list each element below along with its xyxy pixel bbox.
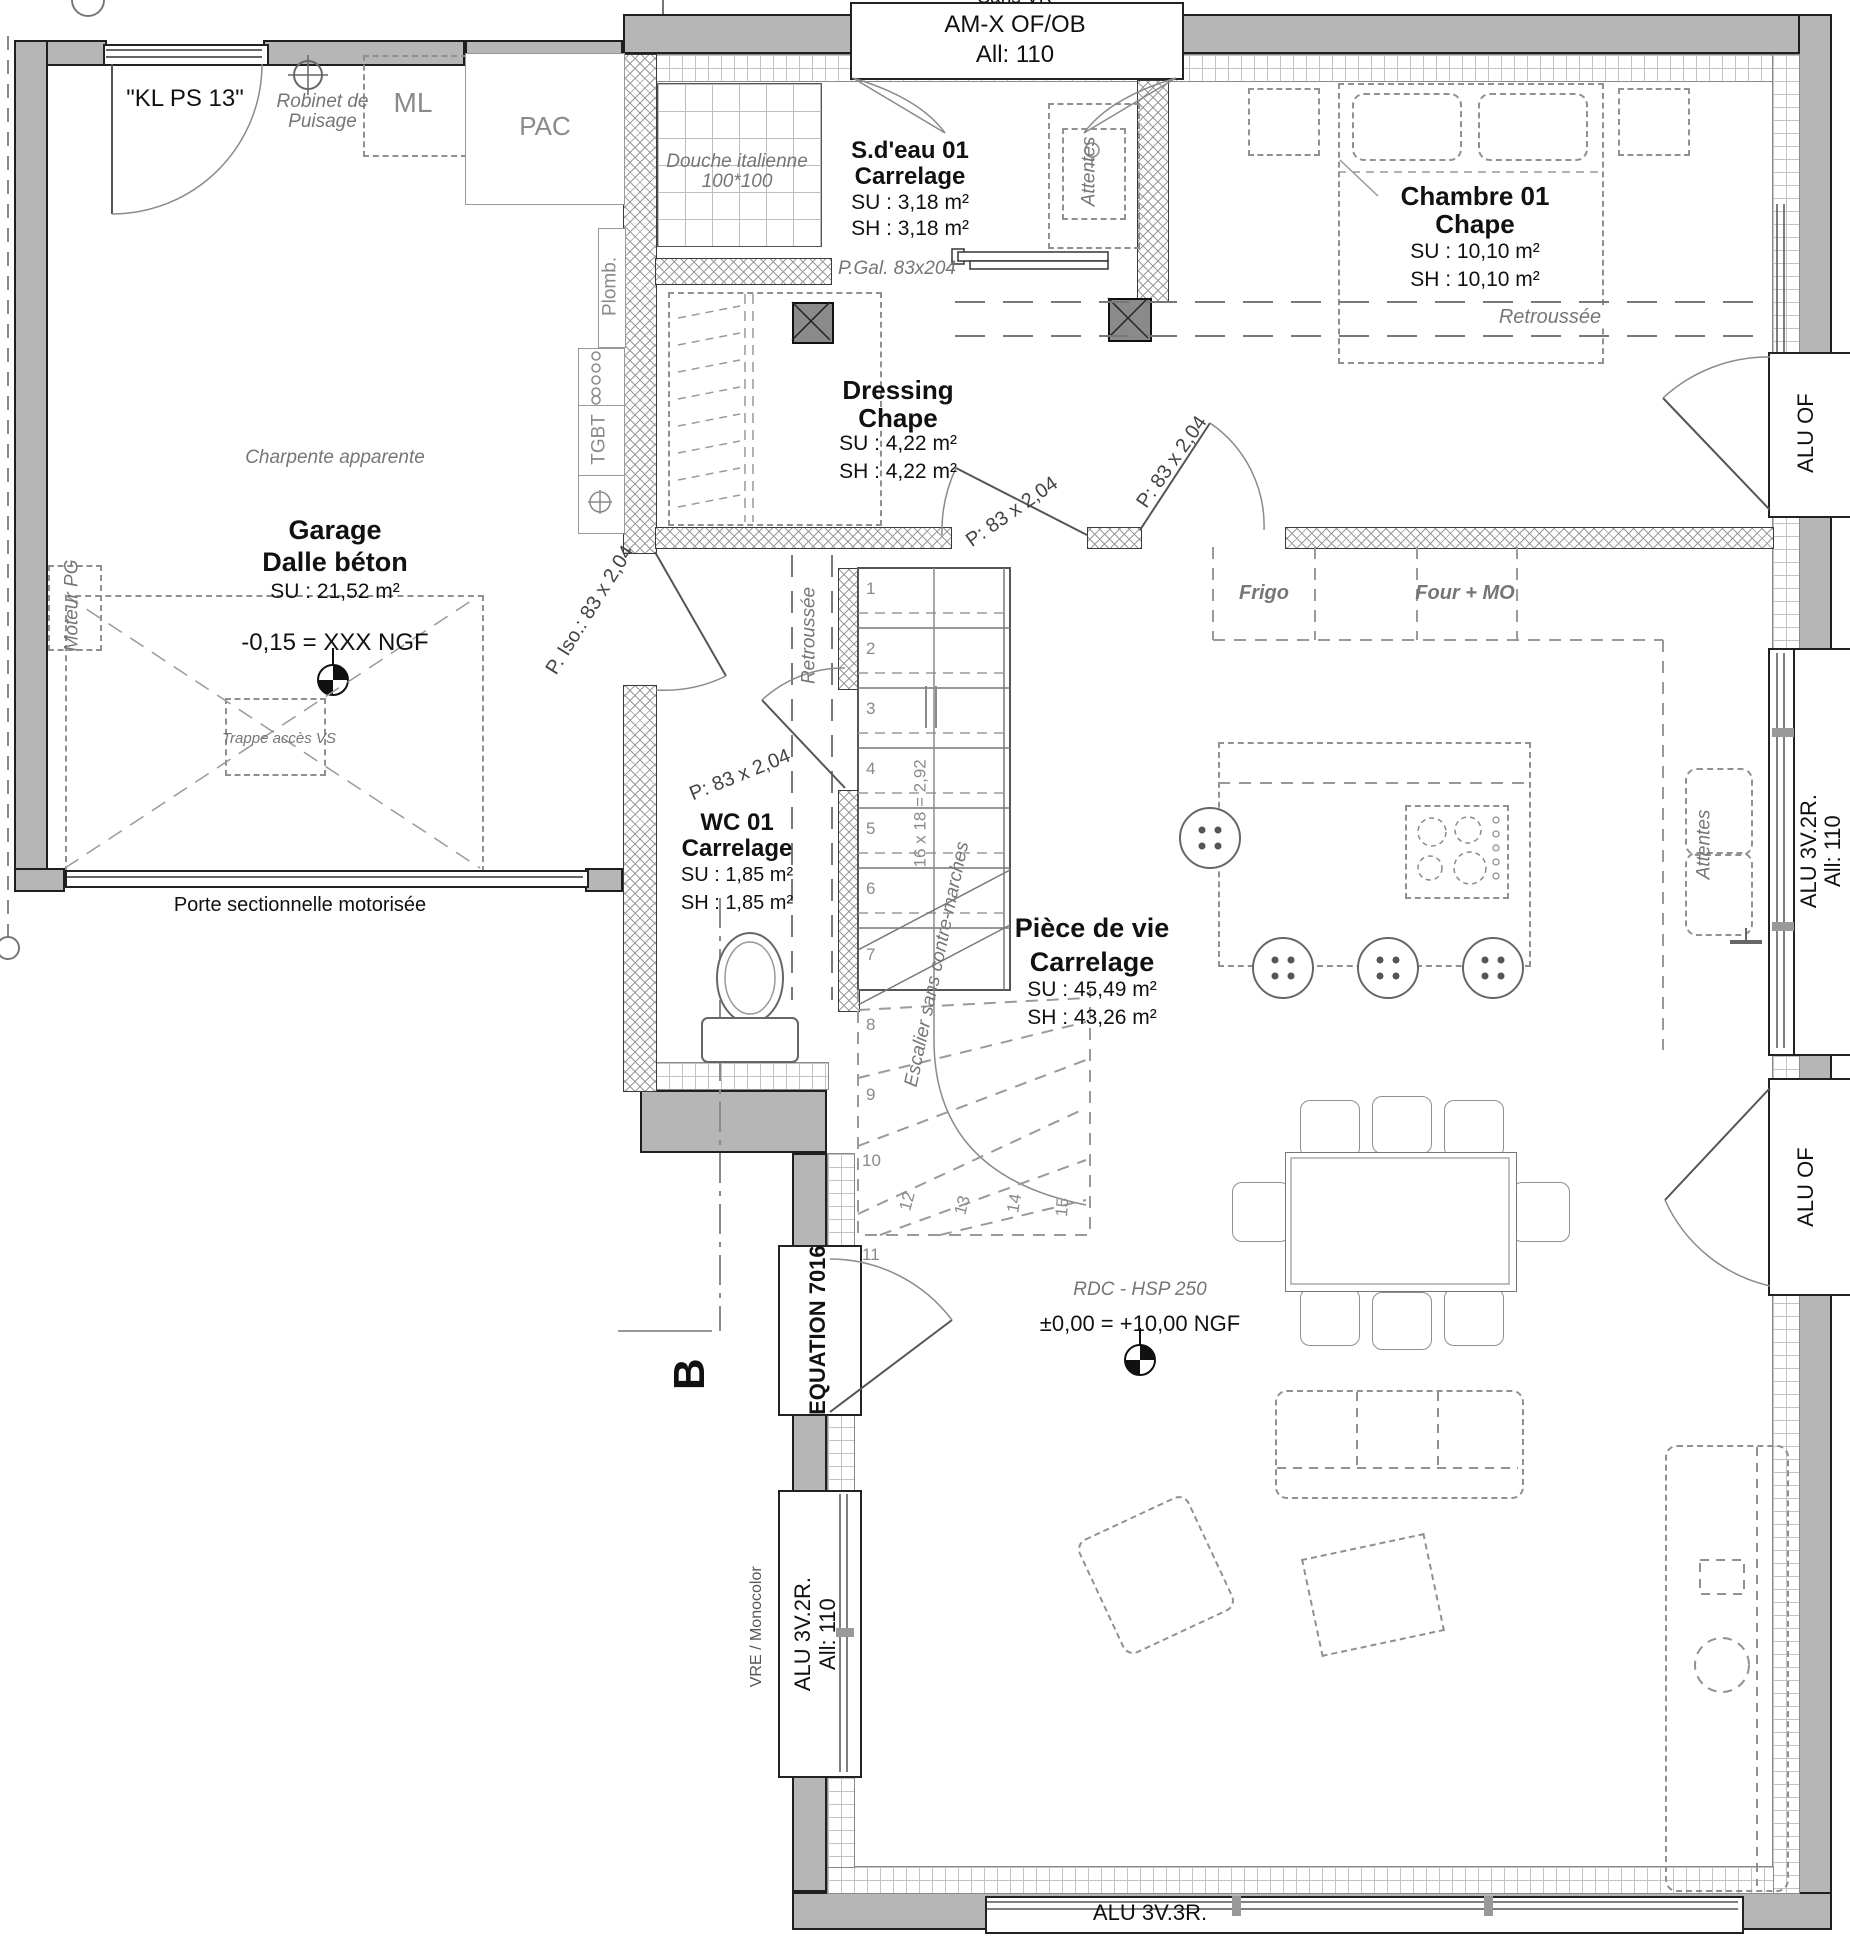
note-rdc: RDC - HSP 250 [1040,1280,1240,1301]
window-top-line1: AM-X OF/OB [880,12,1150,38]
douche-line2: 100*100 [662,172,812,193]
window-top-note: Sans VR [950,0,1080,9]
stair-number: 9 [866,1086,900,1105]
room-chambre-sh: SH : 10,10 m² [1375,268,1575,291]
stair-number: 3 [866,700,900,719]
robinet-line1: Robinet de [270,92,375,113]
room-dressing-su: SU : 4,22 m² [798,432,998,455]
label-plomb: Plomb. [601,221,622,351]
room-garage-name: Garage [240,516,430,546]
window-aluof-upper-label: ALU OF [1794,353,1818,513]
window-alu3v2r-right-l1: ALU 3V.2R. [1797,736,1821,966]
room-dressing-finish: Chape [798,404,998,433]
attentes-sdb-label: Attentes [1080,106,1101,236]
stair-number: 1 [866,580,900,599]
stair-number: 4 [866,760,900,779]
note-retroussee-hall: Retroussée [800,570,821,700]
room-wc-sh: SH : 1,85 m² [657,892,817,914]
stair-formula: 16 x 18 = 2,92 [912,738,931,888]
room-sdeau-name: S.d'eau 01 [820,138,1000,164]
room-garage-su: SU : 21,52 m² [240,580,430,603]
note-retroussee-chambre: Retroussée [1460,306,1640,328]
stair-number: 10 [862,1152,900,1171]
label-tgbt: TGBT [590,374,611,504]
room-wc-name: WC 01 [657,810,817,836]
door-sectional-label: Porte sectionnelle motorisée [170,894,430,916]
label-moteur: Moteur PG [63,540,84,670]
room-wc-finish: Carrelage [657,836,817,862]
window-alu3v2r-left-l1: ALU 3V.2R. [791,1519,815,1749]
stair-number: 2 [866,640,900,659]
room-sdeau-sh: SH : 3,18 m² [820,217,1000,240]
stair-number: 15 [1052,1192,1073,1224]
label-frigo: Frigo [1214,582,1314,604]
window-alu3v2r-right-l2: All: 110 [1821,736,1845,966]
door-entry-label: EQUATION 7016 [806,1245,830,1415]
door-kl-label: "KL PS 13" [110,86,260,112]
label-trappe: Trappe accès VS [222,731,324,748]
section-mark: B [666,1344,714,1404]
window-alu3v2r-left-l2: All: 110 [816,1519,840,1749]
stair-number: 6 [866,880,900,899]
stair-number: 5 [866,820,900,839]
room-vie-su: SU : 45,49 m² [972,978,1212,1001]
room-chambre-finish: Chape [1375,210,1575,239]
room-sdeau-finish: Carrelage [820,164,1000,190]
label-pac: PAC [505,112,585,141]
robinet-line2: Puisage [270,112,375,133]
room-dressing-sh: SH : 4,22 m² [798,460,998,483]
room-vie-name: Pièce de vie [972,914,1212,944]
door-pgal-label: P.Gal. 83x204 [838,259,953,280]
room-garage-finish: Dalle béton [240,548,430,578]
window-aluof-lower-label: ALU OF [1794,1107,1818,1267]
stair-number: 11 [862,1246,900,1265]
window-bottom-label: ALU 3V.3R. [1020,1901,1280,1925]
note-charpente: Charpente apparente [210,448,460,469]
room-chambre-su: SU : 10,10 m² [1375,240,1575,263]
room-dressing-name: Dressing [798,376,998,405]
window-top-line2: All: 110 [880,42,1150,68]
room-wc-su: SU : 1,85 m² [657,864,817,886]
room-vie-sh: SH : 43,26 m² [972,1006,1212,1029]
level-rdc: ±0,00 = +10,00 NGF [1025,1312,1255,1336]
attentes-cuisine-label: Attentes [1695,779,1716,909]
label-ml: ML [378,88,448,119]
stair-number: 8 [866,1016,900,1035]
floor-plan: Sans VR AM-X OF/OB All: 110 Charpente ap… [0,0,1850,1946]
room-vie-finish: Carrelage [972,948,1212,978]
stair-number: 7 [866,946,900,965]
douche-line1: Douche italienne [662,152,812,173]
window-left-note: VRE / Monocolor [748,1542,766,1712]
room-chambre-name: Chambre 01 [1375,182,1575,211]
label-four: Four + MO [1410,582,1520,604]
level-garage: -0,15 = XXX NGF [225,630,445,656]
room-sdeau-su: SU : 3,18 m² [820,191,1000,214]
